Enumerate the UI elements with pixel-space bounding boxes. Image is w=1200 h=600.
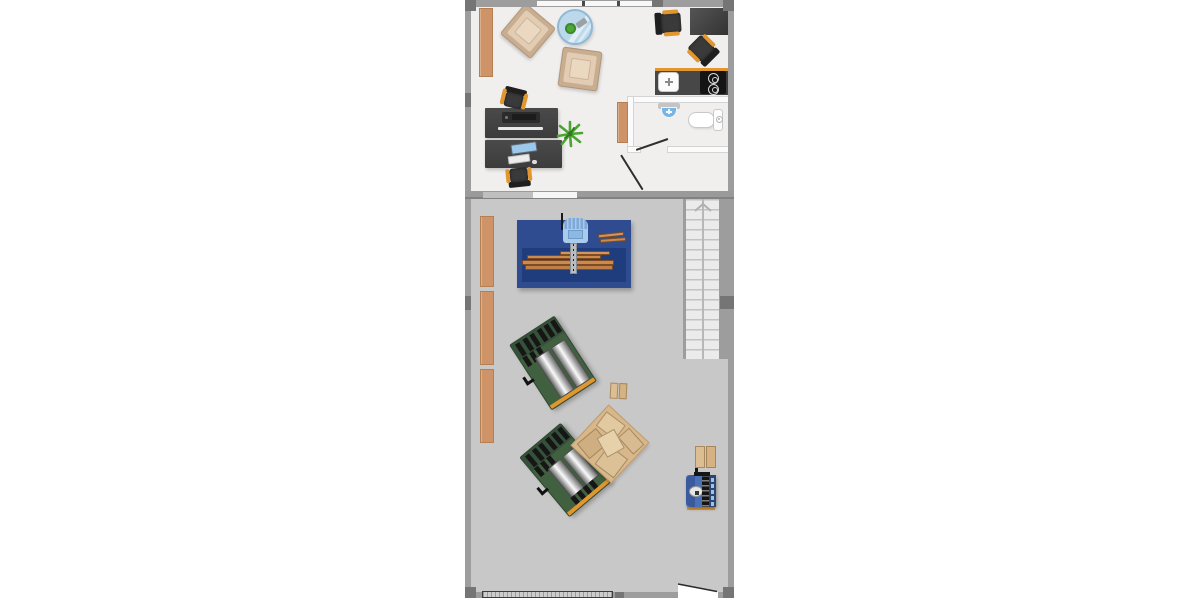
mouse (532, 160, 537, 164)
kitchen-counter[interactable] (655, 68, 728, 95)
divider-window-a[interactable] (483, 192, 533, 198)
bathroom-wall-left (628, 97, 633, 152)
faucet-icon (665, 81, 673, 83)
machine-wheel (689, 486, 703, 497)
toilet-cistern (713, 109, 723, 131)
desk-printer[interactable] (485, 108, 558, 138)
round-glass-table[interactable] (557, 9, 593, 45)
wall-joint (465, 296, 471, 310)
printer-paper-slot (498, 127, 543, 130)
wall-joint (615, 592, 624, 598)
panel-saw-bench[interactable] (517, 220, 631, 288)
workshop-shelf-2[interactable] (480, 291, 494, 365)
lumber-plank (522, 260, 614, 265)
bathroom-wall-bottom-b (668, 147, 728, 152)
saw-rail (570, 243, 577, 274)
lumber-plank (527, 255, 601, 260)
bathroom-wall-top (628, 97, 728, 102)
saw-head (563, 218, 588, 243)
wall-joint (465, 587, 476, 598)
office-chair-1[interactable] (654, 9, 686, 37)
stair-treads (686, 199, 719, 359)
wall-joint (720, 296, 734, 309)
table-plant (565, 23, 576, 34)
keyboard (508, 154, 531, 165)
monitor (510, 141, 537, 155)
desk-chair-bottom[interactable] (505, 166, 533, 189)
potted-plant[interactable] (556, 120, 584, 148)
lumber-bundle-2[interactable] (695, 446, 717, 468)
window-top[interactable] (537, 1, 652, 6)
lumber-plank (525, 265, 613, 270)
stairs-up-arrow-icon (693, 202, 713, 212)
cooktop (700, 71, 726, 94)
printer (502, 112, 540, 123)
wall-joint (723, 587, 734, 598)
floor-plan-canvas (0, 0, 1200, 600)
wall-shelf-bathroom[interactable] (617, 102, 628, 143)
exit-door[interactable] (676, 579, 720, 595)
armchair-2[interactable] (557, 46, 602, 91)
flush-button-icon (716, 116, 723, 123)
desk-computer[interactable] (485, 140, 562, 168)
stair-center-line (702, 199, 704, 359)
machine-panel (709, 475, 716, 507)
printer-button-icon (505, 116, 508, 119)
toilet-bowl[interactable] (688, 112, 715, 128)
saw-head-screen (568, 230, 583, 239)
burner-icon (708, 84, 719, 95)
armchair-cushion (569, 58, 592, 81)
side-table-dark[interactable] (690, 8, 728, 35)
workshop-shelf-3[interactable] (480, 369, 494, 443)
benchtop-machine[interactable] (686, 472, 720, 511)
burner-icon (708, 73, 719, 84)
loose-plank (600, 237, 626, 243)
wall-joint (465, 0, 476, 11)
lumber-plank (560, 251, 610, 255)
stair-right-wall (719, 199, 728, 359)
office-bookshelf[interactable] (479, 8, 493, 77)
staircase[interactable] (683, 199, 728, 359)
window-mullion (582, 1, 585, 6)
lumber-bundle-1[interactable] (610, 383, 629, 400)
workshop-shelf-1[interactable] (480, 216, 494, 287)
divider-window-b[interactable] (533, 192, 577, 198)
wall-joint (723, 0, 734, 11)
wall-joint (652, 0, 663, 7)
window-mullion (617, 1, 620, 6)
machine-belt (702, 475, 709, 507)
garage-door[interactable] (482, 591, 613, 598)
kitchen-sink (658, 72, 679, 92)
floor-plan (465, 0, 734, 598)
wall-joint (465, 93, 471, 107)
